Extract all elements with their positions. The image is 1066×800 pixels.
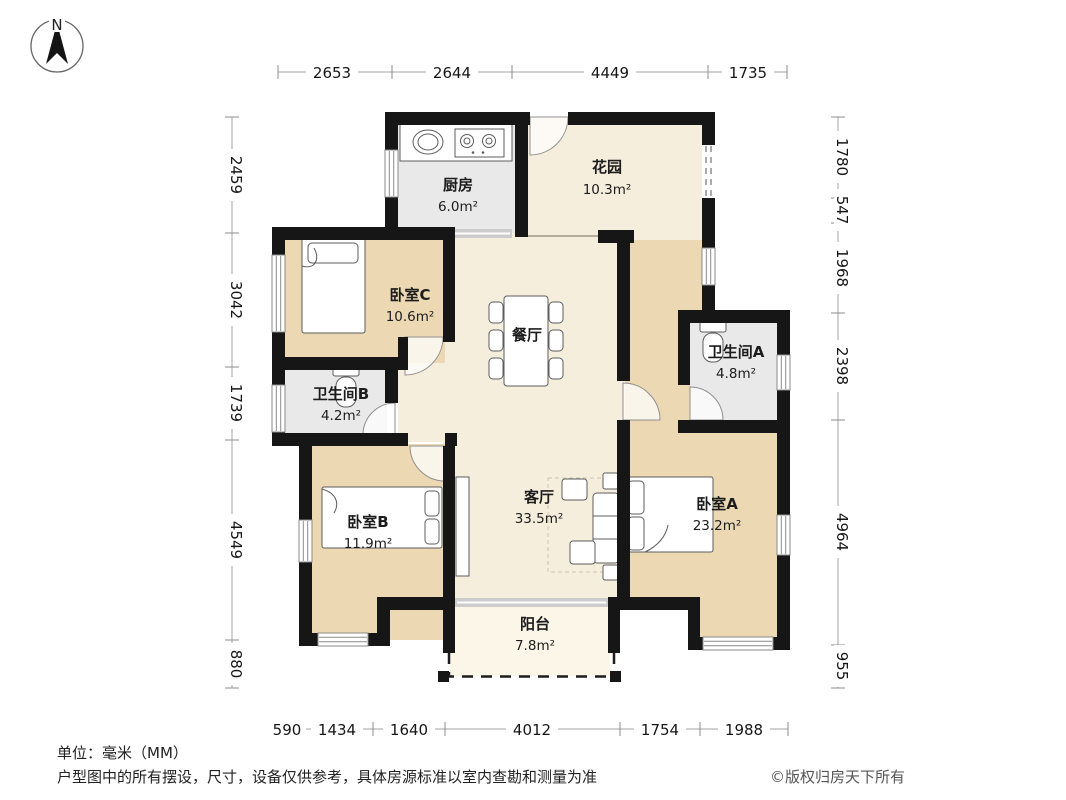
dim-top: 2653 2644 4449 1735 (278, 63, 787, 82)
label-kitchen: 厨房 (443, 176, 473, 194)
label-bathroom-a: 卫生间A (708, 343, 765, 361)
label-dining: 餐厅 (512, 326, 542, 344)
footer: 单位：毫米（MM） 户型图中的所有摆设，尺寸，设备仅供参考，具体房源标准以室内查… (57, 744, 905, 786)
label-living: 客厅 (523, 488, 554, 506)
window-garden-open (702, 145, 715, 198)
label-bedroom-b: 卧室B (347, 513, 388, 531)
dim-right-4: 4964 (833, 513, 851, 551)
dim-right-2: 1968 (833, 249, 851, 287)
dim-right-1: 547 (833, 196, 851, 225)
window-bedroom-a-side (777, 515, 790, 555)
copyright: ©版权归房天下所有 (770, 768, 905, 786)
chaise (570, 541, 595, 564)
dim-right-5: 955 (833, 652, 851, 681)
floorplan-page: 厨房 6.0m² 花园 10.3m² 卧室C 10.6m² 餐厅 卫生间A 4.… (0, 0, 1066, 800)
area-bathroom-b: 4.2m² (321, 408, 361, 424)
area-bathroom-a: 4.8m² (716, 366, 756, 382)
dim-left-2: 1739 (227, 384, 245, 422)
dim-right-3: 2398 (833, 347, 851, 385)
area-bedroom-a: 23.2m² (693, 518, 742, 534)
dim-left: 2459 3042 1739 4549 880 (225, 117, 245, 688)
window-bedroom-b-side (299, 520, 312, 562)
dim-bottom-2: 1640 (390, 721, 428, 739)
dim-right: 1780 547 1968 2398 4964 955 (831, 117, 851, 688)
dim-top-3: 1735 (729, 64, 767, 82)
dim-left-0: 2459 (227, 156, 245, 194)
dim-bottom-3: 4012 (513, 721, 551, 739)
stove-icon (455, 129, 504, 157)
compass: N (31, 16, 83, 72)
area-balcony: 7.8m² (515, 638, 555, 654)
label-bathroom-b: 卫生间B (313, 385, 369, 403)
dim-bottom-1: 1434 (318, 721, 356, 739)
window-corridor (702, 248, 715, 285)
window-bedroom-c (272, 255, 285, 332)
tv-cabinet (456, 477, 469, 576)
label-bedroom-c: 卧室C (389, 286, 430, 304)
window-bathroom-b (272, 385, 285, 432)
area-living: 33.5m² (515, 511, 564, 527)
label-bedroom-a: 卧室A (696, 495, 738, 513)
window-bedroom-a-bottom (703, 637, 773, 650)
window-bedroom-b-bottom (318, 633, 368, 646)
label-garden: 花园 (592, 158, 622, 176)
label-balcony: 阳台 (520, 615, 550, 633)
balcony-post-left (438, 671, 449, 682)
window-kitchen (385, 150, 398, 197)
dim-top-1: 2644 (433, 64, 471, 82)
window-bathroom-a (777, 355, 790, 390)
dim-top-2: 4449 (591, 64, 629, 82)
dim-bottom: 590 1434 1640 4012 1754 1988 (268, 720, 788, 739)
unit-note: 单位：毫米（MM） (57, 744, 188, 762)
compass-n-label: N (51, 16, 62, 34)
coffee-table (562, 479, 587, 500)
sofa (593, 493, 619, 563)
dim-right-0: 1780 (833, 138, 851, 176)
dim-bottom-0: 590 (273, 721, 302, 739)
floor-plan: 厨房 6.0m² 花园 10.3m² 卧室C 10.6m² 餐厅 卫生间A 4.… (0, 0, 1066, 800)
dim-left-3: 4549 (227, 521, 245, 559)
dim-bottom-5: 1988 (725, 721, 763, 739)
dim-left-1: 3042 (227, 281, 245, 319)
dim-left-4: 880 (227, 650, 245, 679)
dim-top-0: 2653 (313, 64, 351, 82)
dim-bottom-4: 1754 (641, 721, 679, 739)
area-kitchen: 6.0m² (438, 199, 478, 215)
balcony-post-right (610, 671, 621, 682)
bed-double-a (624, 477, 713, 552)
disclaimer: 户型图中的所有摆设，尺寸，设备仅供参考，具体房源标准以室内查勘和测量为准 (57, 768, 597, 786)
area-garden: 10.3m² (583, 182, 632, 198)
area-bedroom-b: 11.9m² (344, 536, 393, 552)
bed-single (302, 237, 365, 333)
area-bedroom-c: 10.6m² (386, 309, 435, 325)
kitchen-counter (400, 124, 512, 161)
